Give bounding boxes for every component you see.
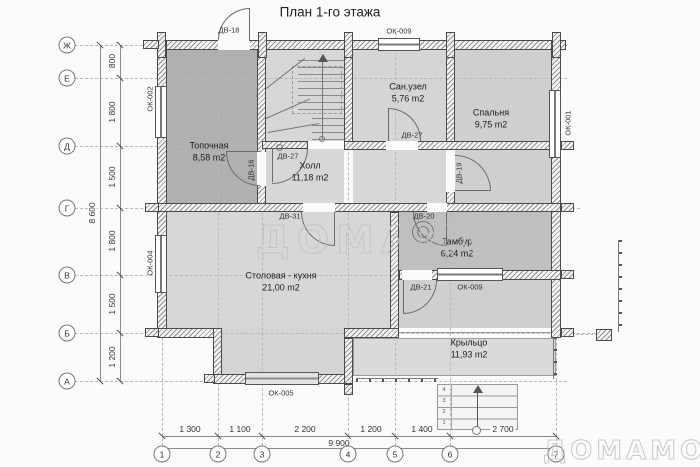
log-stub-west-b [145,328,159,337]
axis-bubble-row: Г [59,200,76,217]
stair-up-arrow [318,54,328,62]
page-title: План 1-го этажа [280,5,381,20]
window-ok005 [245,372,319,385]
door-tag-dv27-stairs: ДВ-27 [278,152,299,160]
entry-steps-number-divider [451,384,452,430]
axis-bubble-col: 3 [254,446,271,463]
log-stub-north-6 [446,32,455,58]
log-stub-north-3 [258,32,267,58]
porch-railing-south [356,378,438,382]
room-label-hall: Холл 11,18 m2 [292,160,329,183]
entry-step-number: 1 [442,420,445,426]
axis-bubble-row: В [59,267,76,284]
terrace-railing-east [618,240,622,332]
porch-post [596,329,612,341]
log-stub-west-top [143,40,159,49]
wall-exterior-west [157,40,167,338]
log-stub-east-g [561,203,574,212]
log-stub-east-b [561,328,574,337]
axis-bubble-row: Б [59,325,76,342]
dim-left-seg: 1 800 [108,228,117,253]
dim-line-left-segments [120,45,121,381]
porch-step-edge [399,332,551,333]
window-tag-ok002: ОК-002 [146,86,154,111]
room-name: Спальня [473,107,509,119]
floor-plan-sheet: План 1-го этажа [0,0,700,467]
wall-row-g [157,203,561,212]
room-label-spalnya: Спальня 9,75 m2 [473,107,509,130]
door-tag-dv16: ДВ-16 [247,160,255,181]
stair-start-circle [319,136,325,142]
wall-row-d [344,141,561,150]
room-fill-corridor [353,150,446,203]
opening-dv27-stairs [308,141,344,149]
window-ok004 [155,235,167,293]
axis-bubble-col: 2 [210,446,227,463]
room-area: 11,93 m2 [451,349,488,361]
room-label-topochnaya: Топочная 8,58 m2 [189,140,228,163]
log-stub-east-d [561,141,574,150]
window-tag-ok004: ОК-004 [146,250,154,275]
room-label-krylco: Крыльцо 11,93 m2 [451,337,488,360]
dim-bottom-seg: 2 200 [292,425,317,434]
door-tag-dv19: ДВ-19 [455,163,463,184]
wall-row-b-mid [344,328,399,338]
room-area: 21,00 m2 [245,282,316,294]
log-stub-east-tambur [561,270,574,279]
dim-left-seg: 1 500 [108,164,117,189]
opening-dv18 [218,40,250,50]
room-name: Столовая - кухня [245,270,316,282]
dim-bottom-seg: 2 700 [490,425,515,434]
log-stub-bay-left [204,374,215,383]
opening-dv27-san [386,141,418,150]
watermark-center: ДОМАМО [256,218,502,262]
axis-bubble-row: Д [59,138,76,155]
wall-exterior-east [551,40,561,338]
entry-step-number: 2 [442,409,445,415]
door-tag-dv21: ДВ-21 [411,283,432,291]
axis-bubble-row: Е [59,70,76,87]
axis-bubble-row: А [59,373,76,390]
dim-line-left-total [100,45,101,381]
window-tag-ok001: ОК-001 [564,110,572,135]
wall-axis3-topochnaya [257,50,266,212]
stair-flight-above-dashed [292,66,342,114]
dim-bottom-seg: 1 300 [177,425,202,434]
dim-bottom-seg: 1 400 [409,425,434,434]
room-name: Крыльцо [451,337,488,349]
axis-bubble-col: 6 [442,446,459,463]
room-area: 5,76 m2 [389,93,427,105]
porch-railing-east [553,337,557,379]
dim-left-total: 8 600 [88,200,97,225]
window-ok009-tambur [437,268,503,281]
dim-left-seg: 1 500 [108,291,117,316]
entry-steps-marker-circle [472,426,481,435]
window-ok001 [549,90,561,158]
watermark-bottom-right: ДОМАМО [543,436,700,466]
axis-bubble-col: 5 [387,446,404,463]
room-area: 9,75 m2 [473,119,509,131]
window-tag-ok009-top: ОК-009 [386,27,411,35]
log-stub-bay-right [344,384,353,395]
entry-steps-direction-line [477,390,478,430]
opening-dv31 [303,203,335,212]
room-fill-stolovaya-bay [222,328,344,374]
dim-left-seg: 800 [108,52,117,70]
room-label-sanuzel: Сан.узел 5,76 m2 [389,81,427,104]
dim-bottom-seg: 1 200 [358,425,383,434]
window-ok002 [155,86,167,138]
room-area: 8,58 m2 [189,152,228,164]
window-tag-ok005: ОК-005 [268,389,293,397]
window-ok009-top [378,38,420,51]
entry-step-number: 4 [442,387,445,393]
wall-axis4-stairs [344,50,353,150]
room-name: Сан.узел [389,81,427,93]
opening-dv21 [402,270,432,280]
dim-line-bottom-segments [162,436,556,437]
room-label-stolovaya: Столовая - кухня 21,00 m2 [245,270,316,293]
stair-direction-line [322,60,323,140]
door-tag-dv27-san: ДВ-27 [402,131,423,139]
axis-bubble-row: Ж [59,37,76,54]
axis-bubble-col: 4 [340,446,357,463]
dim-left-seg: 1 200 [108,344,117,369]
room-name: Холл [292,160,329,172]
dim-left-seg: 1 800 [108,99,117,124]
window-tag-ok009-tambur: ОК-009 [457,283,482,291]
dim-bottom-seg: 1 100 [227,425,252,434]
log-stub-north-7 [552,32,561,58]
log-stub-north-4 [344,32,353,58]
room-name: Топочная [189,140,228,152]
axis-bubble-col: 1 [154,446,171,463]
door-tag-dv18: ДВ-18 [219,26,240,34]
entry-step-number: 3 [442,398,445,404]
wall-bay-east [344,338,353,384]
door-arc-dv18 [218,8,250,40]
entry-steps-up-arrow [473,385,483,393]
room-area: 11,18 m2 [292,172,329,184]
log-stub-west-g [145,203,159,212]
